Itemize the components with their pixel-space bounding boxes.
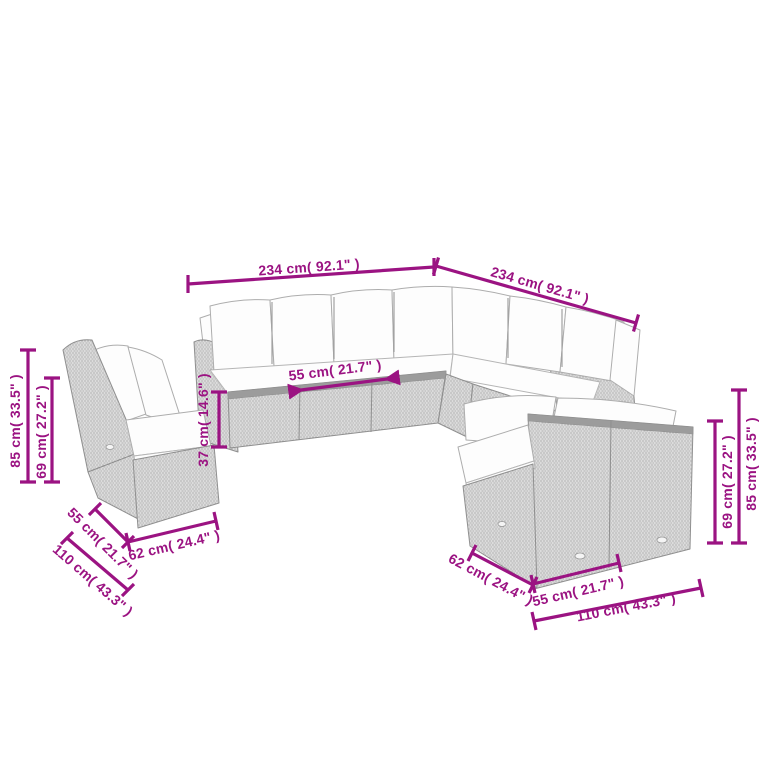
dim-label-seat-base-height: 37 cm( 14.6" )	[195, 373, 211, 467]
dim-label-left-backrest-height: 69 cm( 27.2" )	[33, 385, 49, 479]
furniture-illustration	[0, 0, 767, 767]
product-dimension-diagram: 234 cm( 92.1" ) 234 cm( 92.1" ) 55 cm( 2…	[0, 0, 767, 767]
right-sofa-bench	[458, 396, 693, 589]
dim-label-right-total-height: 85 cm( 33.5" )	[743, 417, 759, 511]
dim-label-left-total-height: 85 cm( 33.5" )	[7, 374, 23, 468]
dim-label-right-backrest-height: 69 cm( 27.2" )	[719, 435, 735, 529]
